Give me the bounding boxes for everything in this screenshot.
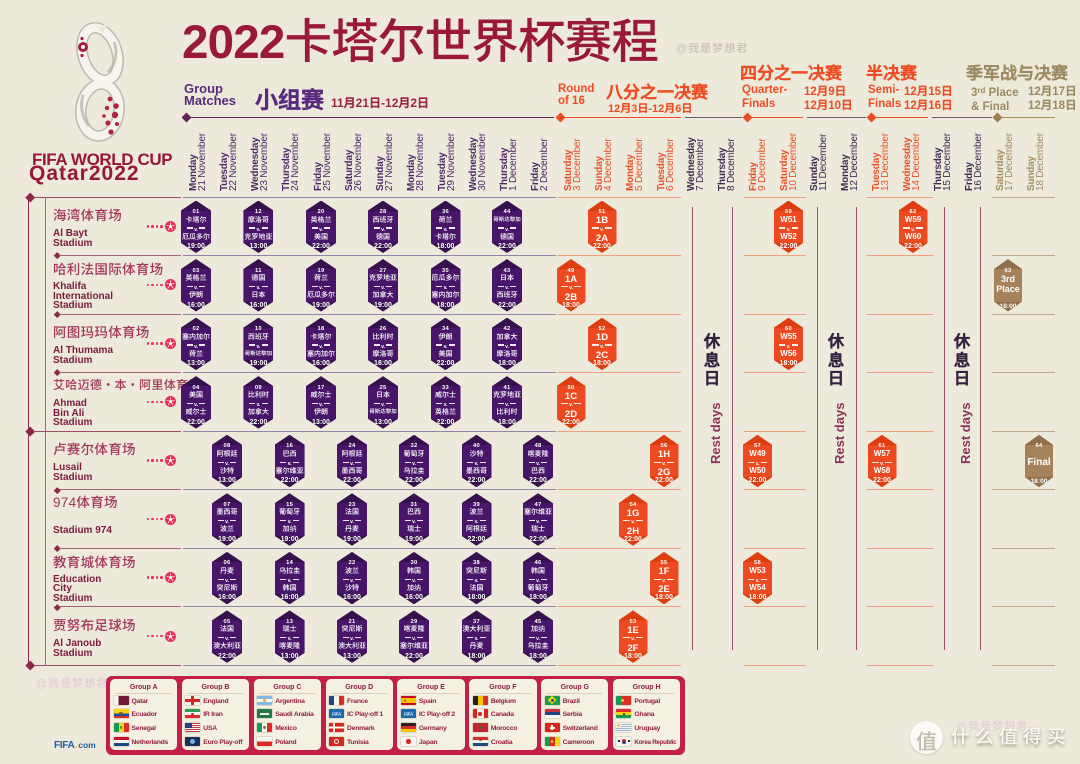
- svg-text:FIFA: FIFA: [332, 712, 341, 717]
- svg-text:FIFA: FIFA: [404, 712, 413, 717]
